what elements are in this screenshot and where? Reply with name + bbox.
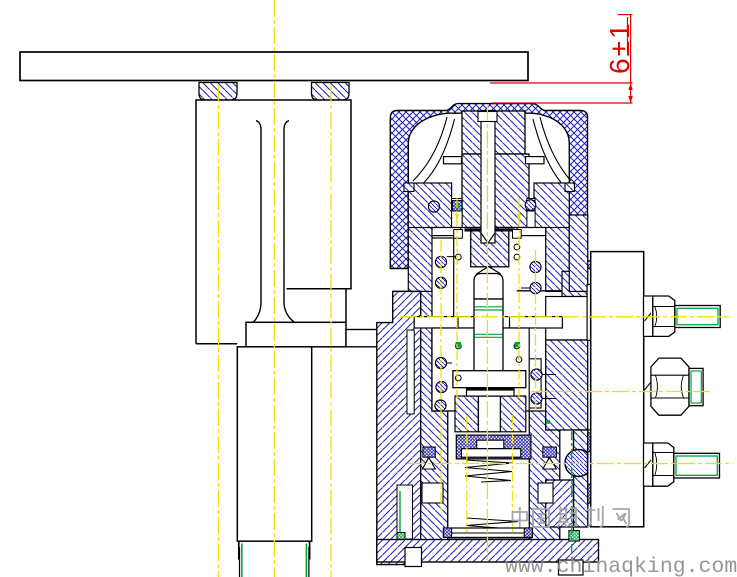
svg-text:www.chinaqking.com: www.chinaqking.com: [505, 555, 737, 577]
svg-text:6±1: 6±1: [604, 21, 635, 74]
